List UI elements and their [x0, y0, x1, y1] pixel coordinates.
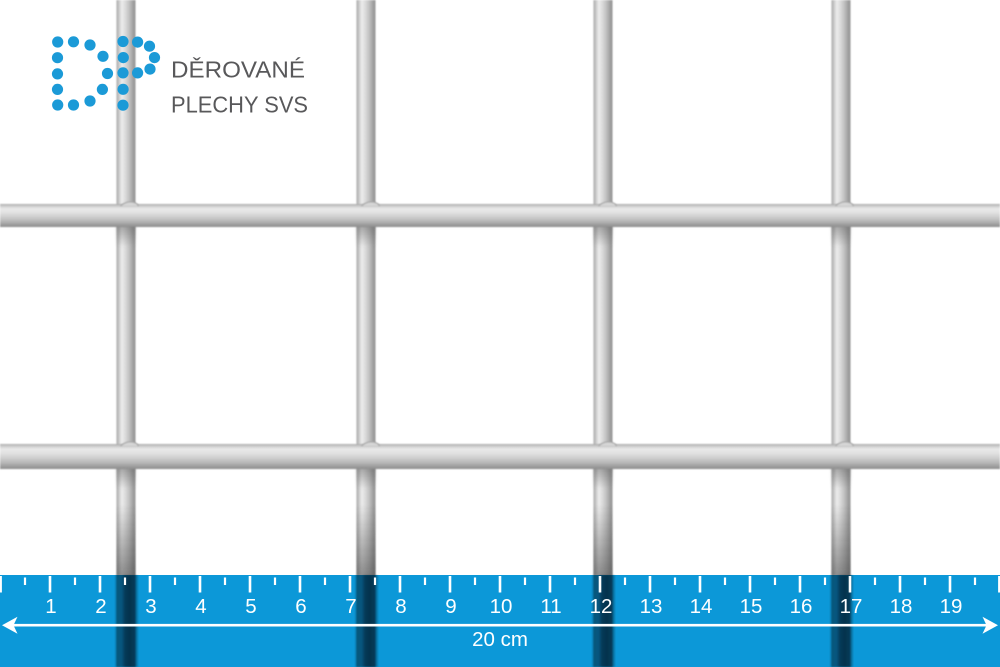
svg-text:3: 3: [145, 595, 156, 618]
svg-text:5: 5: [245, 595, 256, 618]
svg-text:8: 8: [395, 595, 406, 618]
svg-text:6: 6: [295, 595, 306, 618]
svg-text:18: 18: [890, 595, 913, 618]
svg-text:11: 11: [540, 595, 561, 618]
svg-text:12: 12: [590, 595, 613, 618]
svg-text:16: 16: [790, 595, 813, 618]
svg-text:2: 2: [95, 595, 106, 618]
svg-text:19: 19: [940, 595, 963, 618]
svg-text:10: 10: [490, 595, 513, 618]
svg-text:13: 13: [640, 595, 663, 618]
svg-text:4: 4: [195, 595, 206, 618]
svg-text:7: 7: [345, 595, 356, 618]
svg-text:9: 9: [445, 595, 456, 618]
svg-text:20 cm: 20 cm: [472, 628, 528, 651]
svg-text:17: 17: [840, 595, 863, 618]
svg-text:1: 1: [45, 595, 56, 618]
svg-text:PLECHY SVS: PLECHY SVS: [171, 92, 308, 118]
svg-text:15: 15: [740, 595, 763, 618]
svg-text:14: 14: [690, 595, 713, 618]
svg-text:DĚROVANÉ: DĚROVANÉ: [171, 57, 305, 83]
